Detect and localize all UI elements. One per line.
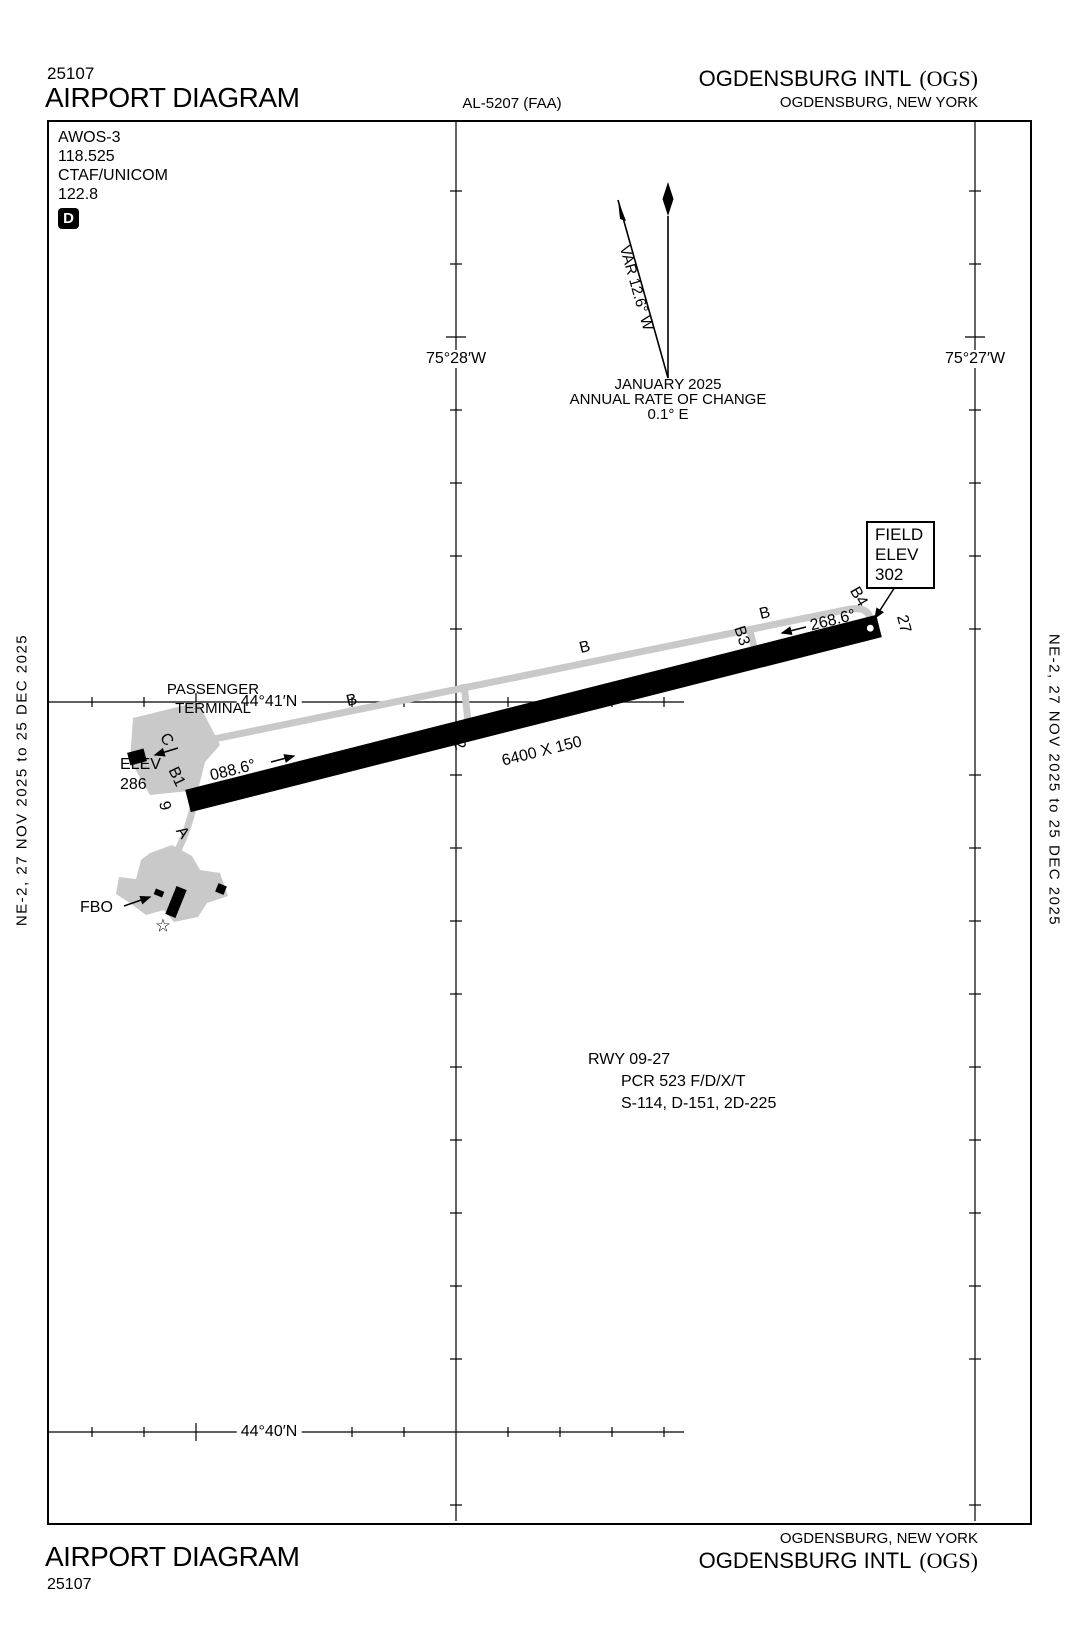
page-title-bottom: AIRPORT DIAGRAM (45, 1541, 299, 1573)
rwy-data-id: RWY 09-27 (588, 1051, 670, 1069)
field-elev-line1: FIELD (875, 525, 933, 545)
airport-name-bottom: OGDENSBURG INTL (699, 1548, 912, 1573)
al-reference: AL-5207 (FAA) (462, 95, 561, 112)
diagram-d-symbol: D (58, 208, 79, 229)
comm-line-ctaf: CTAF/UNICOM (58, 167, 168, 185)
comm-line-ctaf-freq: 122.8 (58, 186, 98, 204)
north-note-value: 0.1° E (647, 406, 688, 423)
airport-location-bottom: OGDENSBURG, NEW YORK (780, 1530, 978, 1547)
procedure-number-top: 25107 (47, 64, 94, 84)
field-elev-value: 302 (875, 565, 933, 585)
airport-code-bottom: (OGS) (919, 1548, 978, 1573)
airport-name-top: OGDENSBURG INTL (699, 66, 912, 91)
procedure-number-bottom: 25107 (47, 1576, 92, 1594)
rwy-west-elev-value: 286 (120, 776, 147, 794)
passenger-terminal-label-1: PASSENGER (167, 681, 259, 698)
field-elev-line2: ELEV (875, 545, 933, 565)
rwy-data-pcr: PCR 523 F/D/X/T (621, 1073, 745, 1091)
map-border (47, 120, 1032, 1525)
comm-line-awos-freq: 118.525 (58, 148, 115, 166)
airport-title-top: OGDENSBURG INTL(OGS) (699, 66, 978, 92)
lon-label-75-28: 75°28′W (422, 350, 490, 368)
airport-code-top: (OGS) (919, 66, 978, 91)
airport-title-bottom: OGDENSBURG INTL(OGS) (699, 1548, 978, 1574)
fbo-label: FBO (80, 899, 113, 917)
edge-band-right: NE-2, 27 NOV 2025 to 25 DEC 2025 (1046, 634, 1063, 926)
airport-location-top: OGDENSBURG, NEW YORK (780, 94, 978, 111)
page-title-top: AIRPORT DIAGRAM (45, 82, 299, 114)
rwy-data-strength: S-114, D-151, 2D-225 (621, 1095, 776, 1113)
passenger-terminal-label-2: TERMINAL (175, 700, 251, 717)
lat-label-44-40: 44°40′N (237, 1423, 302, 1441)
beacon-star-icon: ☆ (155, 916, 171, 937)
edge-band-left: NE-2, 27 NOV 2025 to 25 DEC 2025 (14, 634, 31, 926)
lon-label-75-27: 75°27′W (941, 350, 1009, 368)
field-elev-box: FIELD ELEV 302 (866, 521, 935, 589)
airport-diagram-page: 25107 AIRPORT DIAGRAM AL-5207 (FAA) OGDE… (0, 0, 1076, 1650)
rwy-west-elev-label: ELEV (120, 756, 161, 774)
comm-line-awos: AWOS-3 (58, 129, 121, 147)
